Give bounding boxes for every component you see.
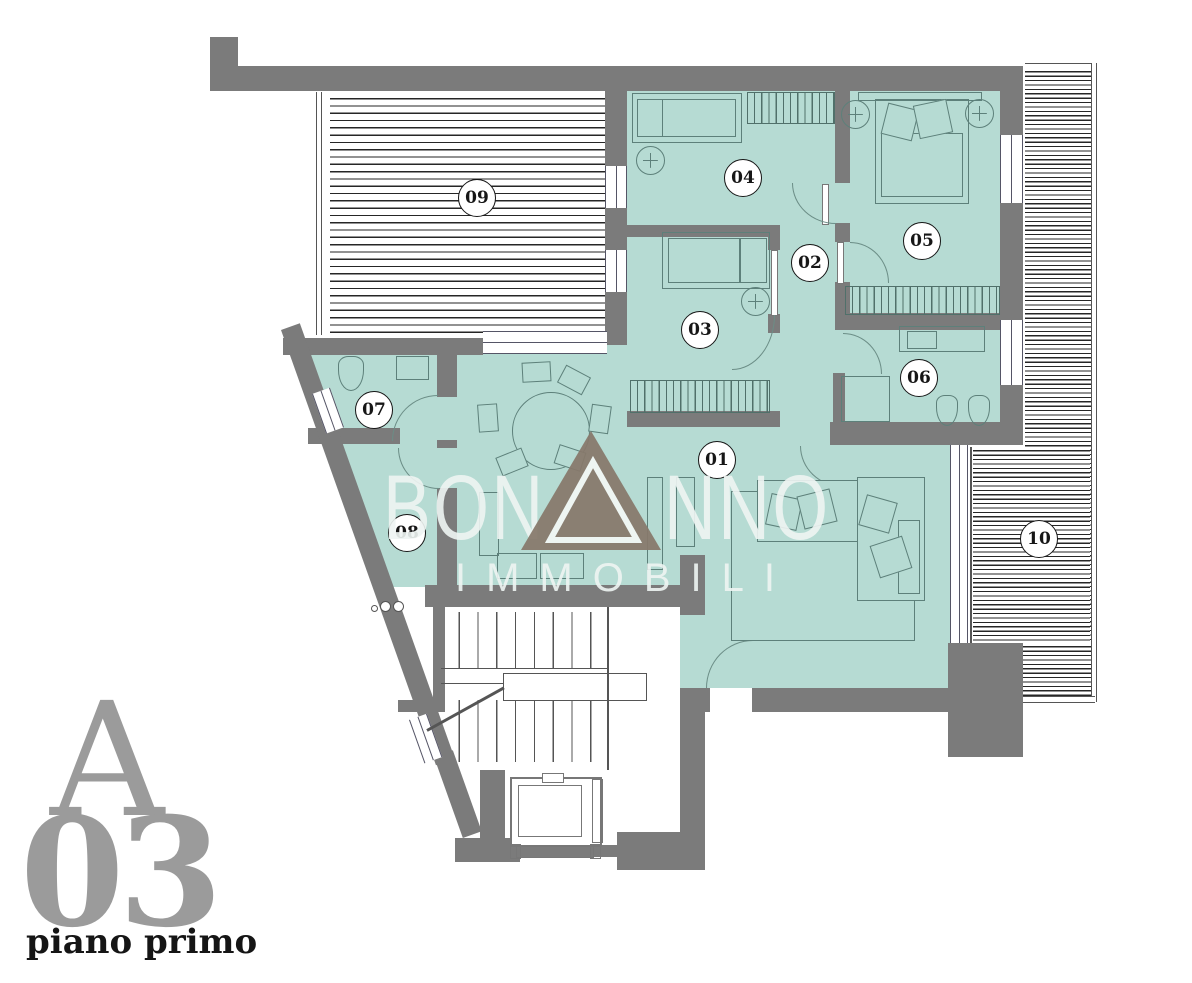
wall-07-right-b xyxy=(437,440,457,448)
wardrobe-room03 xyxy=(630,380,770,413)
dining-chair xyxy=(588,404,612,435)
wall-diagonal-lower xyxy=(434,750,482,838)
dining-chair xyxy=(477,403,499,432)
room-label-10: 10 xyxy=(1020,520,1058,558)
elevator-cab xyxy=(518,785,582,837)
window-room06 xyxy=(1000,320,1023,385)
door-leaf-room05 xyxy=(837,242,844,284)
terrace10-left-line xyxy=(970,447,972,643)
window-living-terrace10 xyxy=(950,445,968,643)
room-label-05: 05 xyxy=(903,222,941,260)
elevator-detail-left xyxy=(510,844,521,859)
tall-unit-b xyxy=(676,477,695,547)
stairs-upper-flight xyxy=(441,612,607,668)
room-label-03: 03 xyxy=(681,311,719,349)
wall-elevator-left xyxy=(480,770,505,845)
wardrobe-room05 xyxy=(845,286,1000,315)
wall-08-right xyxy=(437,488,457,587)
bedside-lamp-room03 xyxy=(741,287,770,316)
wall-06-bottom xyxy=(830,422,1023,445)
dining-chair xyxy=(521,361,551,382)
room-label-07: 07 xyxy=(355,391,393,429)
room-label-02: 02 xyxy=(791,244,829,282)
room-label-08: 08 xyxy=(388,514,426,552)
mattress-room03 xyxy=(668,238,740,283)
pillow-room05-right xyxy=(913,99,953,139)
wall-east-1 xyxy=(1000,90,1023,135)
room-label-09-text: 09 xyxy=(465,188,489,208)
wall-living-southwest xyxy=(425,585,680,607)
room-label-06-text: 06 xyxy=(907,368,931,388)
mattress-room05 xyxy=(881,133,963,197)
mattress-room04 xyxy=(662,99,736,137)
window-room05 xyxy=(1000,135,1023,203)
stairs-stringer xyxy=(503,673,647,701)
sink-room06 xyxy=(907,331,937,349)
room-label-09: 09 xyxy=(458,179,496,217)
shower-room06 xyxy=(841,376,890,422)
wall-top xyxy=(210,66,1023,91)
bedside-lamp-room05-right xyxy=(965,99,994,128)
wall-05-left-a xyxy=(835,223,850,242)
sideboard-a xyxy=(497,553,537,579)
elevator-detail-right xyxy=(590,844,601,859)
cabinet-left xyxy=(479,492,499,556)
room-label-04: 04 xyxy=(724,159,762,197)
room-label-08-text: 08 xyxy=(395,523,419,543)
wall-south-a xyxy=(705,688,710,712)
terrace10-decking-low xyxy=(1023,643,1091,696)
landing-spots-icon xyxy=(371,601,405,613)
floor-label: piano primo xyxy=(26,925,257,959)
terrace10-bottom-edge xyxy=(1023,696,1095,703)
terrace09-left-edge xyxy=(316,92,322,335)
wall-03-bottom xyxy=(627,411,780,427)
room-label-05-text: 05 xyxy=(910,231,934,251)
door-leaf-room03 xyxy=(771,250,778,316)
wall-07-right-a xyxy=(437,348,457,397)
pillow-room04 xyxy=(637,99,663,137)
window-room04 xyxy=(605,166,627,208)
room-label-03-text: 03 xyxy=(688,320,712,340)
stairs-right-line xyxy=(607,607,609,770)
wall-corridor-stub xyxy=(680,555,705,615)
sliding-door-terrace09 xyxy=(483,331,607,354)
bedside-lamp-room05-left xyxy=(841,100,870,129)
wardrobe-room04 xyxy=(747,92,835,124)
floor-plan: 01 02 03 04 05 06 07 08 09 10 BON NNO IM… xyxy=(0,0,1192,983)
sideboard-b xyxy=(540,553,584,579)
room-label-06: 06 xyxy=(900,359,938,397)
elevator-detail-top xyxy=(542,773,564,783)
wall-terrace-divider xyxy=(605,90,627,345)
tall-unit-a xyxy=(647,477,663,570)
pillow-room03 xyxy=(740,238,767,283)
wall-southeast-pillar xyxy=(948,643,1023,757)
window-room03 xyxy=(605,250,627,292)
sink-room07 xyxy=(396,356,429,380)
room-label-02-text: 02 xyxy=(798,253,822,273)
bedside-lamp-room04 xyxy=(636,146,665,175)
wall-landing-bottom xyxy=(398,700,445,712)
wall-bottom-center xyxy=(617,832,705,870)
room-label-04-text: 04 xyxy=(731,168,755,188)
room-label-01-text: 01 xyxy=(705,450,729,470)
room-label-07-text: 07 xyxy=(362,400,386,420)
elevator-counterweight xyxy=(516,846,594,858)
wall-east-2 xyxy=(1000,203,1023,320)
wall-top-notch xyxy=(210,37,238,67)
room-label-01: 01 xyxy=(698,441,736,479)
elevator-door xyxy=(592,779,603,843)
terrace10-right-edge xyxy=(1091,63,1097,702)
elevator xyxy=(508,773,608,859)
room-label-10-text: 10 xyxy=(1027,529,1051,549)
